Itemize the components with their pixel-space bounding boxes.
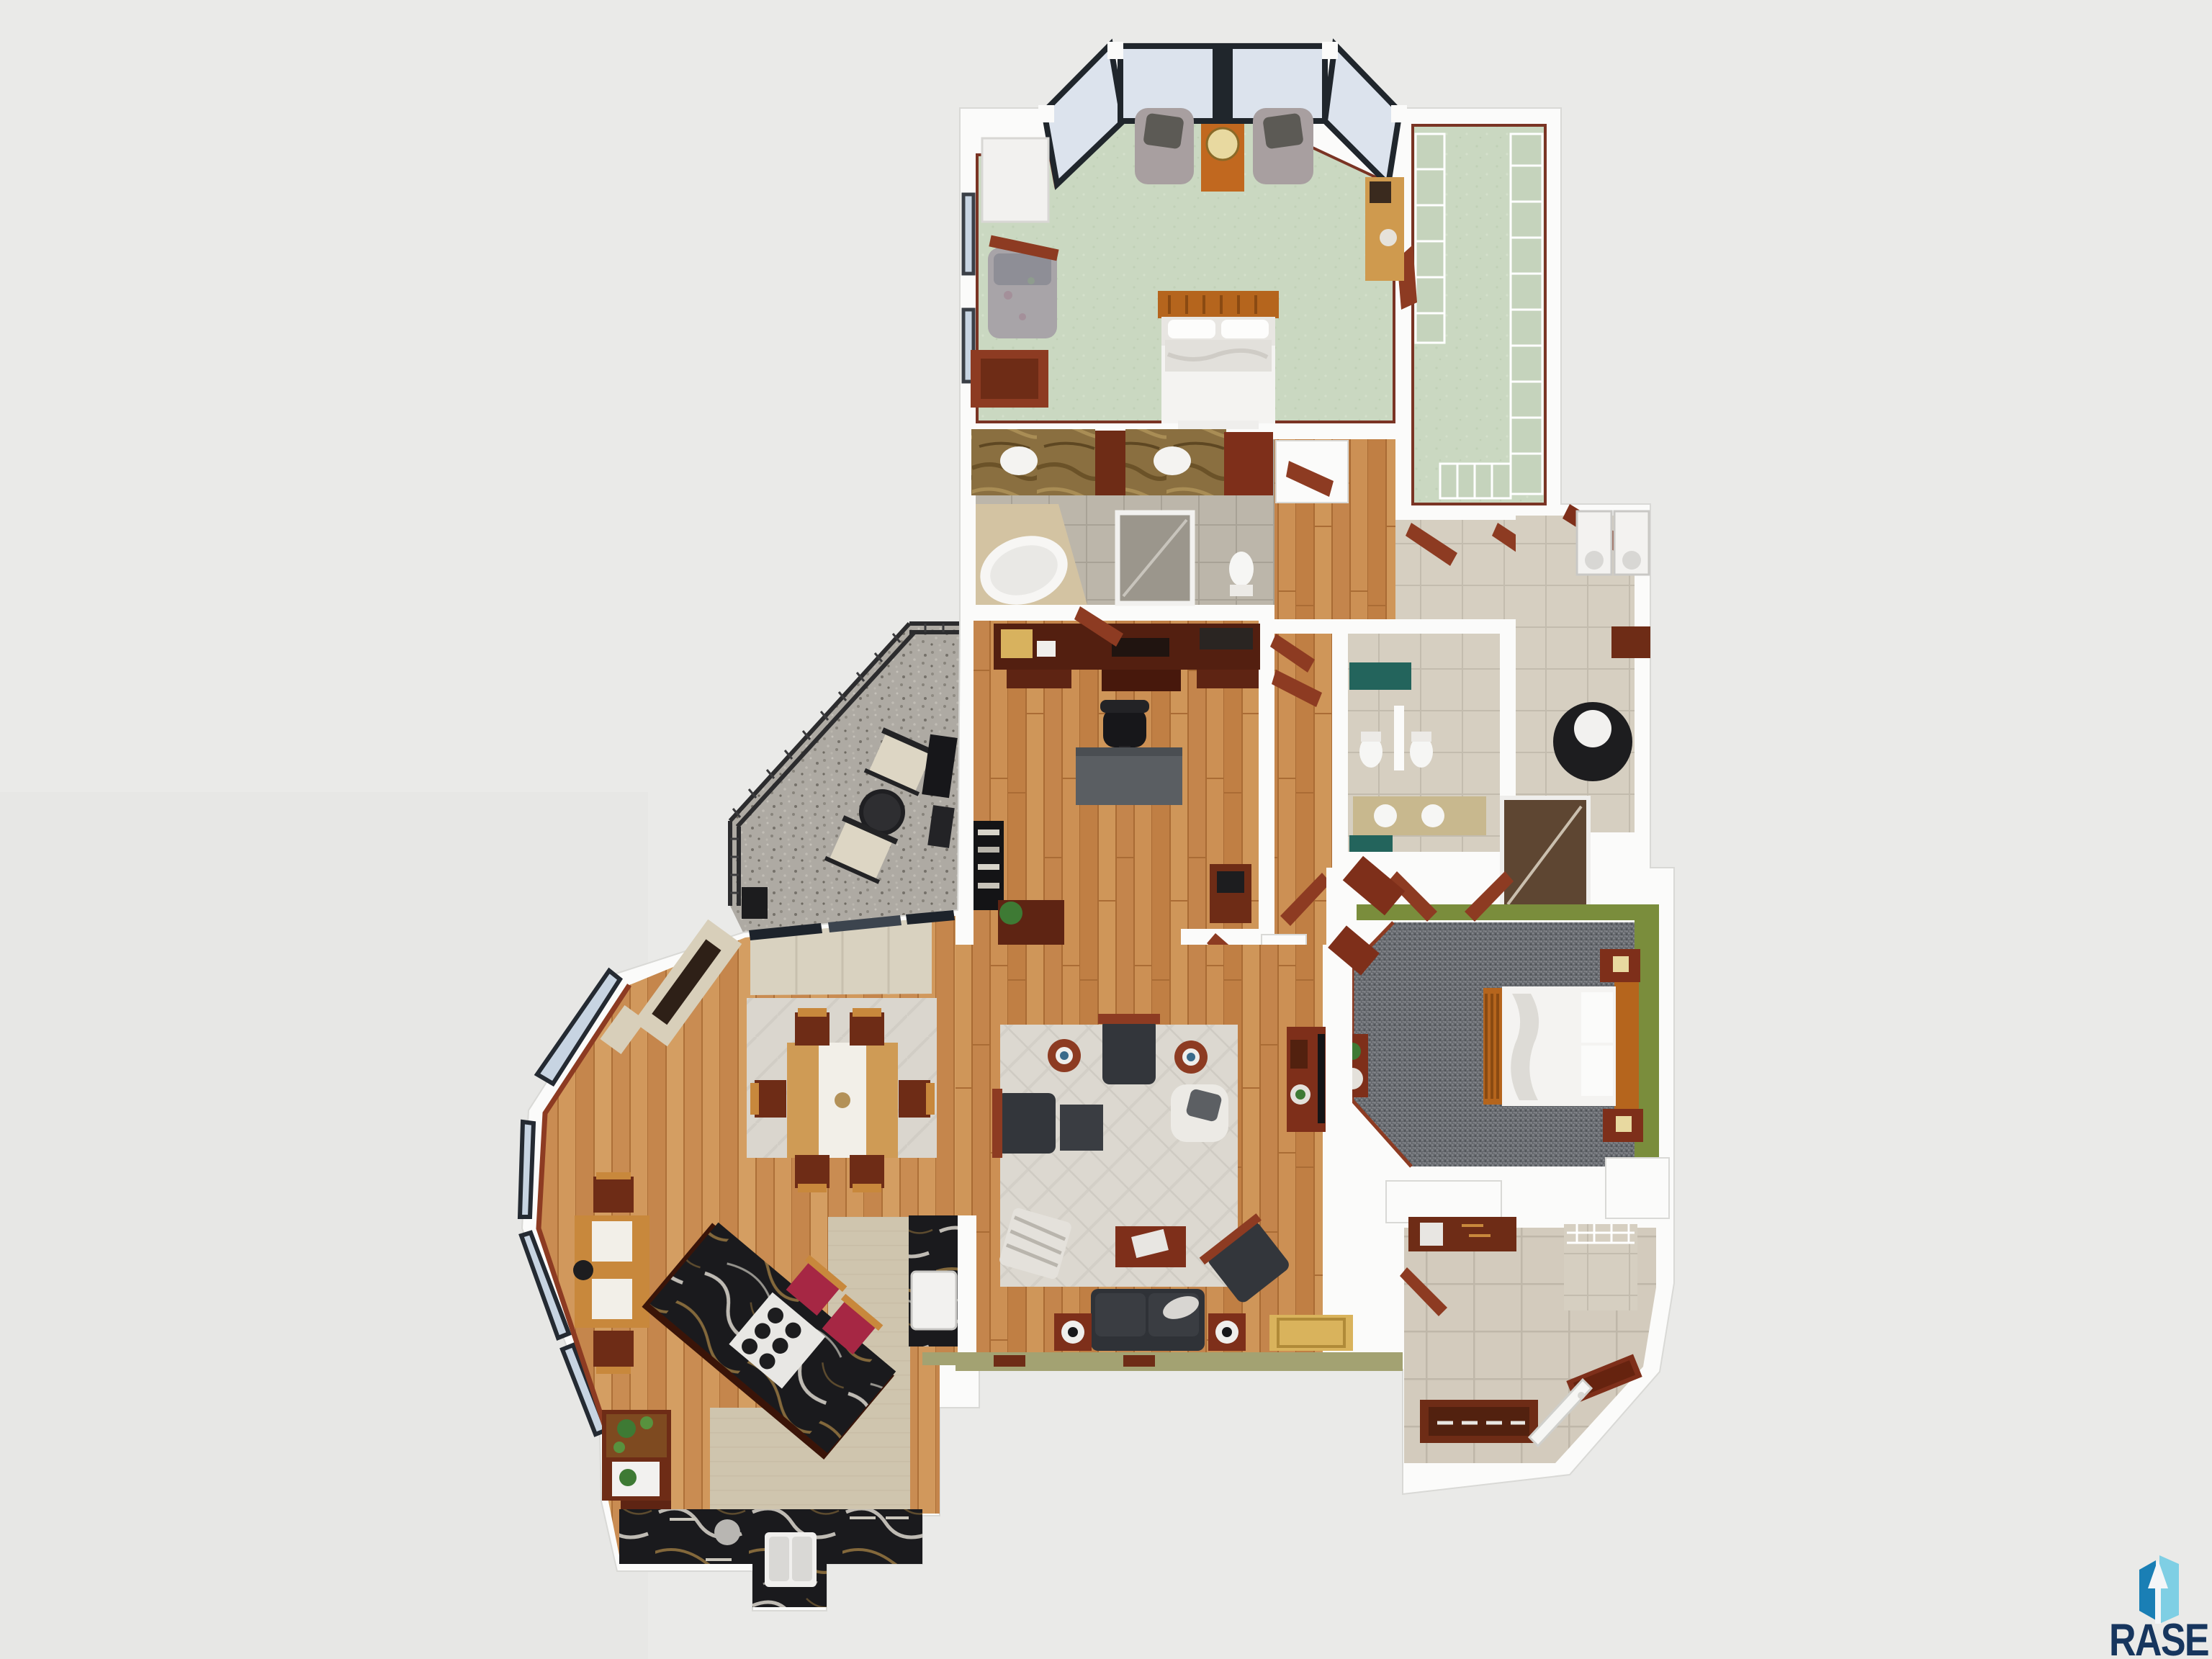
svg-text:RASE: RASE [2109,1615,2208,1659]
